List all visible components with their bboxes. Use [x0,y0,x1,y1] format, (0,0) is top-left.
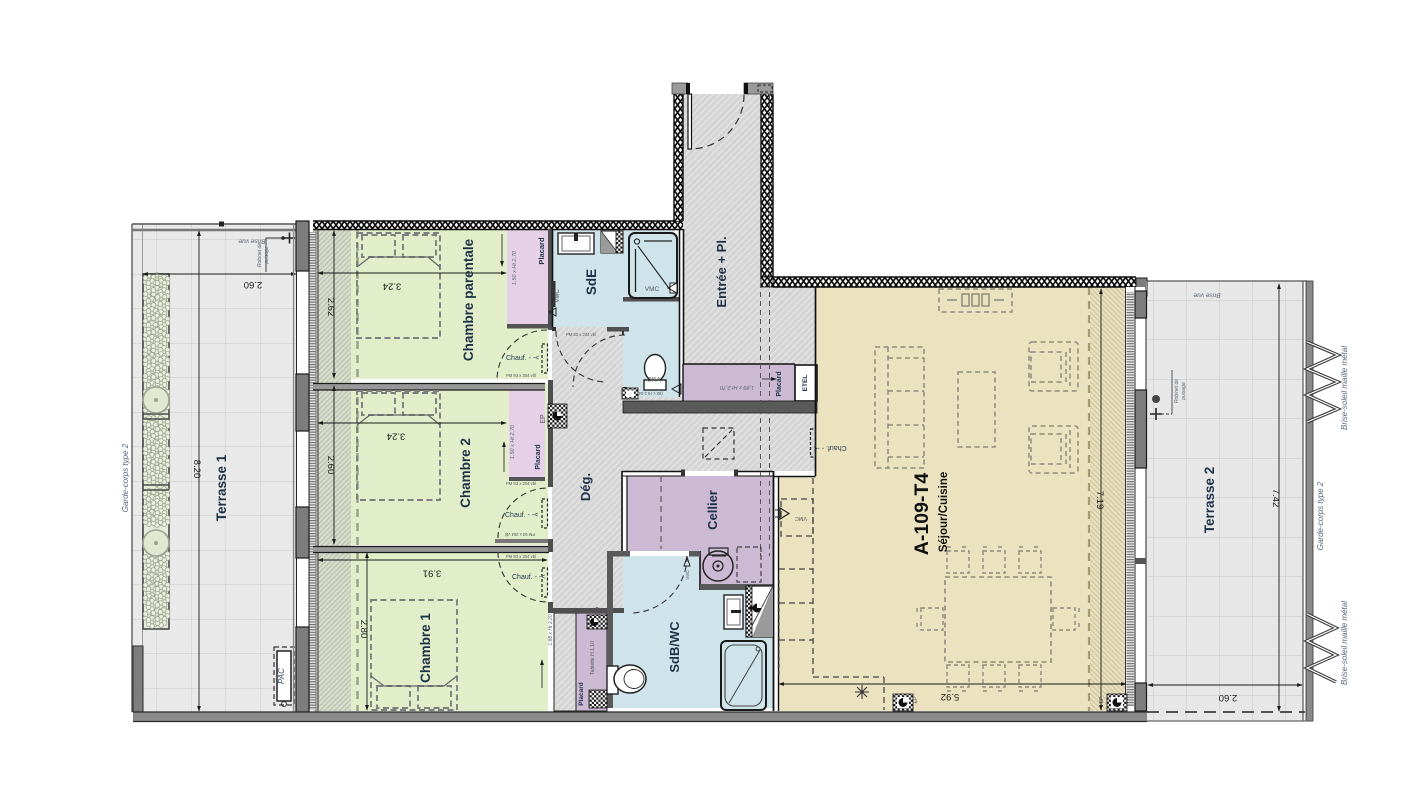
svg-text:3.24: 3.24 [383,281,402,292]
svg-text:VMC: VMC [647,375,661,381]
svg-text:PM 93 x 204 vbl: PM 93 x 204 vbl [506,373,536,378]
svg-text:Chambre 1: Chambre 1 [418,613,433,683]
svg-text:EP: EP [913,696,919,704]
svg-text:(92 x Ht 2,04): (92 x Ht 2,04) [637,391,663,396]
svg-text:Séjour/Cuisine: Séjour/Cuisine [938,472,950,553]
svg-text:EP: EP [1099,696,1105,704]
svg-text:Brise vue: Brise vue [1193,292,1220,299]
svg-text:VMC: VMC [555,289,561,303]
svg-text:PM 93 x 204 vbl: PM 93 x 204 vbl [506,481,536,486]
svg-text:2.80: 2.80 [358,620,369,639]
svg-text:1,50 x Ht 2,70: 1,50 x Ht 2,70 [512,250,518,285]
svg-text:SdE: SdE [584,269,599,295]
svg-text:Placard: Placard [537,237,546,265]
svg-text:VMC: VMC [795,515,807,521]
svg-text:puisage: puisage [1181,382,1187,401]
svg-text:3.24: 3.24 [387,431,406,442]
svg-text:5.92: 5.92 [941,691,960,702]
svg-text:Chauf. - -<: Chauf. - -< [505,512,538,519]
svg-text:Garde-corps type 2: Garde-corps type 2 [121,443,130,512]
svg-text:VMC: VMC [685,570,690,579]
svg-text:Placard: Placard [535,444,542,469]
svg-text:1,50 x Ht 2,70: 1,50 x Ht 2,70 [510,424,516,459]
svg-text:Tablette H 1.10: Tablette H 1.10 [590,641,596,675]
svg-text:Dég.: Dég. [578,473,593,501]
svg-text:Placard: Placard [776,371,783,396]
svg-text:7.19: 7.19 [1094,491,1105,510]
svg-text:VMC: VMC [645,286,660,293]
svg-text:Chauf. - -<: Chauf. - -< [813,444,846,451]
svg-text:2.60: 2.60 [1219,692,1238,703]
svg-text:Placard: Placard [578,682,585,706]
svg-text:Cellier: Cellier [705,490,720,530]
svg-text:Robinet de: Robinet de [1174,379,1180,403]
svg-text:Terrasse 2: Terrasse 2 [1202,467,1217,534]
svg-text:Brise-soleil maille métal: Brise-soleil maille métal [1340,346,1349,430]
svg-text:Entrée + Pl.: Entrée + Pl. [714,236,729,307]
svg-text:3.91: 3.91 [423,568,442,579]
svg-text:2.60: 2.60 [325,456,336,475]
svg-text:Chauf. - -<: Chauf. - -< [506,355,539,362]
svg-text:PAC: PAC [277,668,286,684]
svg-text:7.42: 7.42 [1270,489,1281,508]
svg-text:1,88 x Ht 2,20: 1,88 x Ht 2,20 [548,614,554,645]
svg-text:EP: EP [540,414,547,424]
svg-text:2.62: 2.62 [325,298,336,317]
svg-text:Chambre parentale: Chambre parentale [461,238,476,361]
svg-text:ETEL: ETEL [802,375,809,392]
svg-text:Brise-soleil maille métal: Brise-soleil maille métal [1340,601,1349,685]
svg-text:Chambre 2: Chambre 2 [458,438,473,508]
svg-text:Garde-corps type 2: Garde-corps type 2 [1316,481,1325,550]
svg-text:1,89 x Ht 2,70: 1,89 x Ht 2,70 [719,384,754,390]
svg-text:A-109-T4: A-109-T4 [911,473,933,556]
svg-text:puisage: puisage [264,246,270,265]
svg-text:8.20: 8.20 [191,460,202,479]
svg-text:Terrasse 1: Terrasse 1 [214,454,229,521]
svg-text:PM 83 x 204 vbl: PM 83 x 204 vbl [566,332,596,337]
svg-text:SdB/WC: SdB/WC [667,621,682,673]
svg-text:EP: EP [595,607,602,616]
svg-text:Robinet de: Robinet de [257,243,263,267]
svg-text:2.60: 2.60 [244,279,263,290]
svg-text:PM 93 x 204 vbl: PM 93 x 204 vbl [505,532,535,537]
svg-text:Chauf. - -<: Chauf. - -< [512,574,545,581]
svg-text:PM 93 x 204 vbl: PM 93 x 204 vbl [506,554,536,559]
